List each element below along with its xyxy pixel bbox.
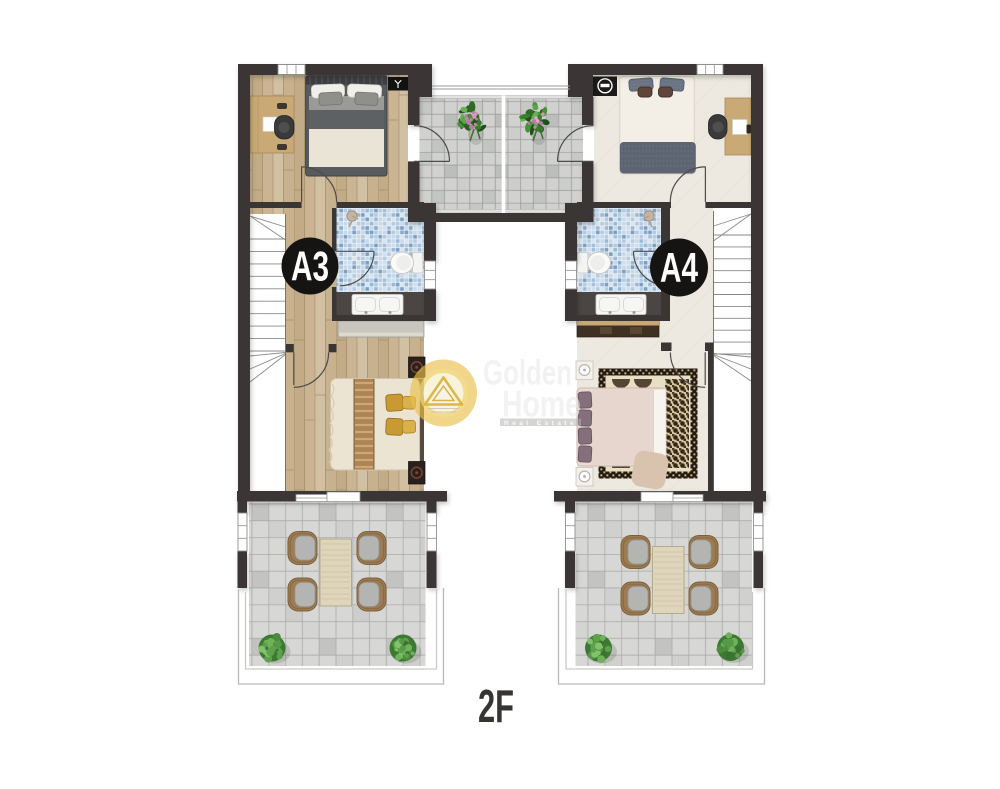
svg-text:A3: A3 bbox=[291, 243, 329, 290]
svg-text:A4: A4 bbox=[660, 244, 698, 291]
svg-text:2F: 2F bbox=[478, 680, 514, 732]
svg-text:Real Estate: Real Estate bbox=[504, 420, 577, 427]
svg-text:Home: Home bbox=[502, 384, 581, 425]
